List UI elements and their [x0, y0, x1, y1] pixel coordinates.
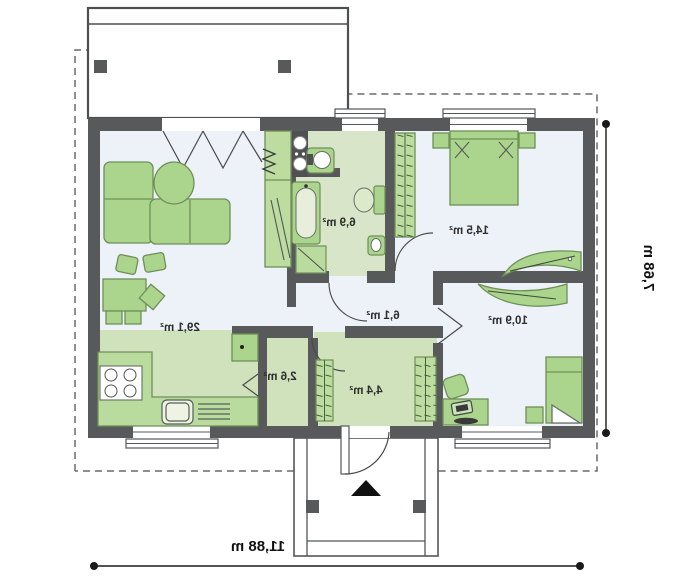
nightstand — [526, 407, 543, 423]
pouf — [115, 254, 138, 275]
window-bedroom — [443, 109, 535, 131]
porch-post — [413, 500, 426, 513]
bathroom-area-label: 6,9 m² — [322, 217, 355, 229]
bidet-icon — [368, 236, 385, 255]
washer-dryer-icon — [292, 131, 308, 177]
wall-hall-bedroom2 — [433, 283, 443, 305]
nightstand — [433, 133, 449, 148]
living-room-area-label: 29,1 m² — [160, 322, 200, 334]
wardrobe — [415, 357, 436, 421]
bathtub-icon — [292, 182, 320, 244]
terrace-post — [278, 60, 291, 73]
dining-table — [103, 279, 146, 311]
stove-icon — [100, 366, 142, 400]
wall-bottom — [210, 426, 342, 438]
toilet-icon — [354, 186, 385, 214]
terrace-post — [94, 60, 107, 73]
shelving-unit — [263, 131, 291, 267]
wall-top — [378, 118, 450, 131]
bedroom-area-label: 14,5 m² — [449, 225, 489, 237]
entry-porch — [294, 438, 438, 556]
wardrobe — [316, 360, 333, 421]
nightstand — [519, 133, 535, 148]
width-dimension-label: 11,88 m — [231, 538, 285, 555]
washbasin-icon — [307, 148, 334, 173]
dining-chair — [106, 311, 122, 324]
wall-right — [583, 118, 595, 438]
terrace-door-opening — [162, 118, 260, 131]
window-bathroom — [335, 109, 385, 131]
hall-area-label: 6,1 m² — [366, 310, 399, 322]
wardrobe — [395, 133, 415, 237]
depth-dimension-label: 7,68 m — [640, 245, 657, 292]
pouf — [143, 252, 167, 272]
double-bed — [450, 131, 518, 205]
bedroom2-area-label: 10,9 m² — [488, 315, 528, 327]
keyboard-icon — [454, 418, 478, 424]
pantry-area-label: 2,6 m² — [263, 371, 296, 383]
fridge-icon — [232, 334, 258, 361]
wall-bottom — [390, 426, 462, 438]
window-bedroom2 — [455, 426, 550, 448]
terrace — [88, 8, 348, 118]
shower-icon — [296, 246, 326, 273]
dimension-depth: 7,68 m — [602, 120, 657, 437]
wall-hall-entry — [345, 326, 443, 338]
wall-top — [260, 118, 342, 131]
wall-bath-bedroom — [385, 131, 395, 283]
porch-post — [306, 500, 319, 513]
single-bed — [546, 357, 582, 423]
floor-plan-drawing: 29,1 m² 6,9 m² 14,5 m² 6,1 m² 2,6 m² 4,4… — [0, 0, 700, 576]
coffee-table — [154, 162, 194, 204]
floor-plan-page: 29,1 m² 6,9 m² 14,5 m² 6,1 m² 2,6 m² 4,4… — [0, 0, 700, 576]
laptop-icon — [451, 400, 473, 415]
dining-chair — [125, 311, 141, 324]
window-kitchen — [126, 426, 218, 448]
entry-area-label: 4,4 m² — [349, 385, 382, 397]
